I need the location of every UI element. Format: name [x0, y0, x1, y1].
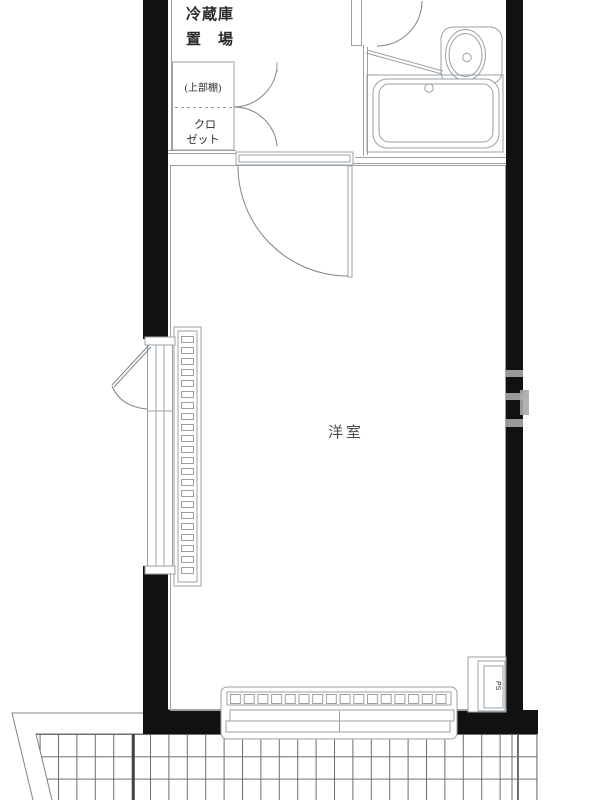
wall-bottom-right	[455, 710, 538, 734]
wall-right	[506, 0, 523, 712]
closet-label-line2: ゼット	[187, 133, 220, 146]
closet-label-line1: クロ	[194, 118, 216, 131]
sliding-sash-2	[226, 721, 450, 732]
refrigerator-label-line1: 冷蔵庫	[186, 5, 234, 23]
window-sash	[148, 344, 173, 566]
floor-plan-svg: 冷蔵庫 置 場 (上部棚) クロ ゼット	[0, 0, 600, 800]
shutter-slats	[181, 336, 194, 578]
floor-plan: 冷蔵庫 置 場 (上部棚) クロ ゼット	[0, 0, 600, 800]
window-cap-bottom	[145, 566, 175, 574]
sink-basin	[446, 30, 486, 81]
closet-shelf-label: (上部棚)	[185, 81, 222, 94]
room-door-threshold	[236, 152, 353, 165]
wall-left-lower	[143, 566, 168, 734]
refrigerator-label-line2: 置 場	[186, 31, 234, 48]
bathtub-outer	[373, 79, 499, 148]
sliding-sash-1	[230, 710, 454, 721]
balcony-tile-grid	[36, 734, 537, 800]
room-door-leaf	[348, 166, 352, 277]
wall-left-upper	[143, 0, 168, 339]
bathtub	[367, 75, 503, 152]
window-cap-top	[145, 337, 175, 345]
shutter-rail-slats	[230, 694, 448, 704]
ps-box: PS	[468, 657, 506, 712]
wall-bottom-left	[143, 710, 228, 734]
main-room-label: 洋室	[328, 424, 364, 441]
ps-label: PS	[494, 681, 501, 691]
